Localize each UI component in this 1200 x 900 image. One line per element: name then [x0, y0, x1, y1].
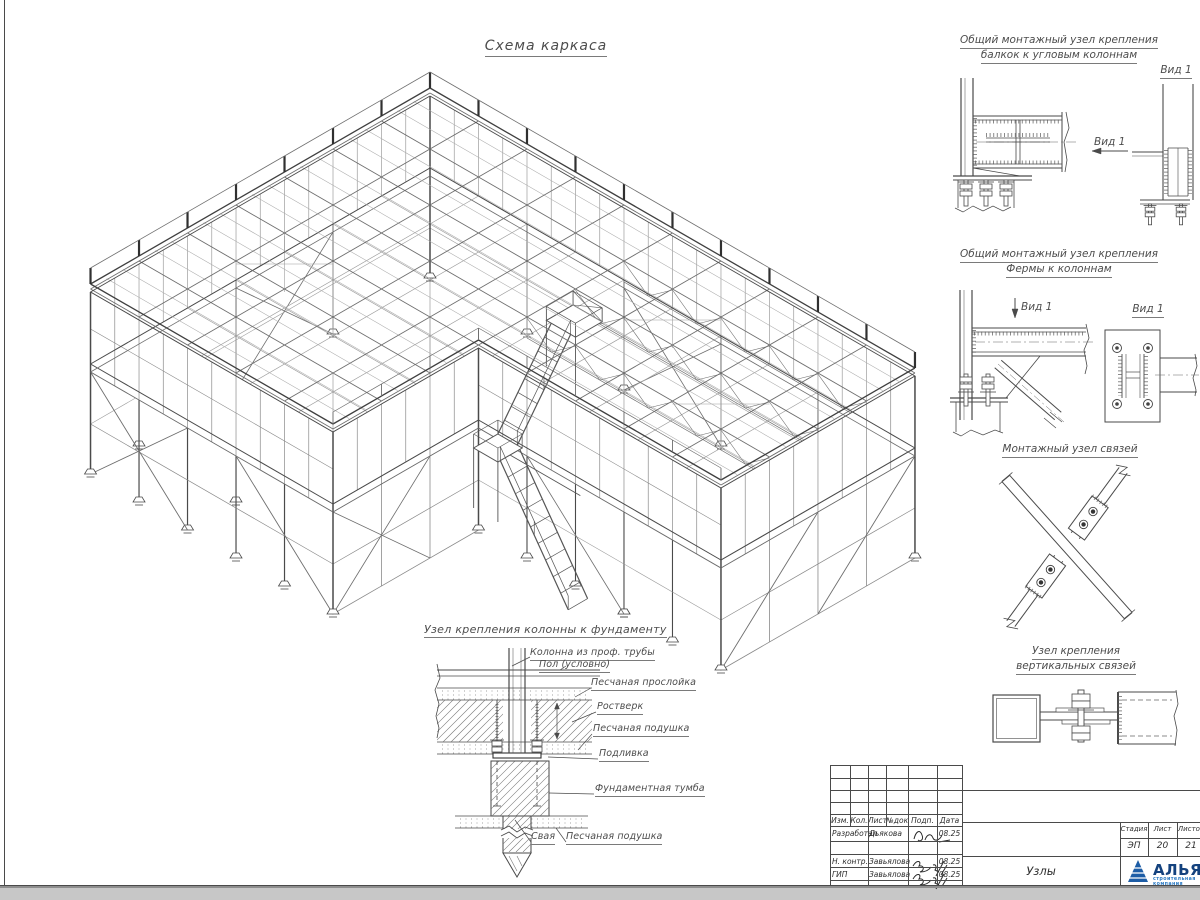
tb-date-1: 08.25 [937, 829, 962, 838]
tb-name-3: Завьялова [869, 870, 907, 879]
tb-header-doc: №док [886, 816, 908, 825]
tb-date-2: 08.25 [937, 857, 962, 866]
tb-role-3: ГИП [832, 870, 872, 879]
label-sand-cushion2: Песчаная подушка [566, 831, 662, 845]
tb-sheets-value: 21 [1177, 841, 1200, 851]
title-block-line [1148, 822, 1149, 856]
tb-header-list: Лист [868, 816, 886, 825]
title-block-line [962, 765, 963, 885]
title-block-line [962, 822, 1200, 823]
title-block-line [830, 867, 962, 868]
title-block-line [937, 765, 938, 885]
title-block-line [908, 765, 909, 885]
title-block-line [850, 765, 851, 826]
label-grillage: Ростверк [597, 701, 643, 715]
company-logo-icon [1128, 860, 1148, 882]
title-block-line [1120, 822, 1121, 885]
frame-3d-view [85, 72, 921, 673]
label-sand-layer: Песчаная прослойка [591, 677, 696, 691]
company-subtitle: строительная компания [1153, 877, 1200, 887]
tb-stage-value: ЭП [1120, 841, 1148, 851]
detail1-view-title: Вид 1 [1152, 64, 1200, 79]
tb-header-kol: Кол. [850, 816, 868, 825]
detail5-title: Узел крепления колонны к фундаменту [424, 623, 648, 638]
tb-name-1: Дьякова [869, 829, 907, 838]
tb-role-2: Н. контр. [832, 857, 872, 866]
tb-stage-header: Стадия [1120, 825, 1148, 833]
detail-beam-corner-column [953, 78, 1193, 225]
label-pile: Свая [531, 831, 555, 845]
tb-role-1: Разработал [832, 829, 872, 838]
detail2-view-title: Вид 1 [1122, 303, 1174, 318]
title-block-line [830, 765, 831, 885]
label-floor: Пол (условно) [539, 659, 610, 673]
title-block-line [1120, 838, 1200, 839]
tb-doc-title: Узлы [962, 864, 1120, 878]
tb-header-data: Дата [937, 816, 962, 825]
title-block-line [830, 841, 962, 842]
tb-sheet-value: 20 [1148, 841, 1177, 851]
sheet-edge-shadow [0, 886, 1200, 888]
detail1-title: Общий монтажный узел крепления балкок к … [952, 34, 1166, 64]
tb-name-2: Завьялова [869, 857, 907, 866]
label-sand-cushion: Песчаная подушка [593, 723, 689, 737]
tb-sheet-header: Лист [1148, 825, 1177, 833]
title-block-line [830, 826, 962, 827]
sheet-border-left [4, 0, 5, 886]
tb-header-izm: Изм. [830, 816, 850, 825]
title-block-line [962, 856, 1200, 857]
detail1-view-arrow-label: Вид 1 [1094, 136, 1125, 149]
title-block-line [830, 880, 962, 881]
tb-sheets-header: Листов [1177, 825, 1200, 833]
title-block-line [1177, 822, 1178, 856]
detail3-title: Монтажный узел связей [975, 443, 1165, 458]
label-grout: Подливка [599, 748, 649, 762]
title-block-line [886, 765, 887, 826]
detail2-view-arrow-label: Вид 1 [1021, 301, 1052, 314]
main-view-title: Схема каркаса [478, 38, 614, 57]
drawing-sheet: Схема каркаса Общий монтажный узел крепл… [0, 0, 1200, 886]
title-block-line [830, 854, 962, 855]
tb-date-3: 08.25 [937, 870, 962, 879]
title-block-line [962, 790, 1200, 791]
detail4-title: Узел крепления вертикальных связей [990, 645, 1162, 675]
detail2-title: Общий монтажный узел крепления Фермы к к… [952, 248, 1166, 278]
detail-vertical-brace-node [993, 690, 1178, 746]
label-pedestal: Фундаментная тумба [595, 783, 705, 797]
detail-brace-node [999, 465, 1135, 629]
tb-header-podp: Подп. [908, 816, 937, 825]
title-block-line [868, 765, 869, 885]
